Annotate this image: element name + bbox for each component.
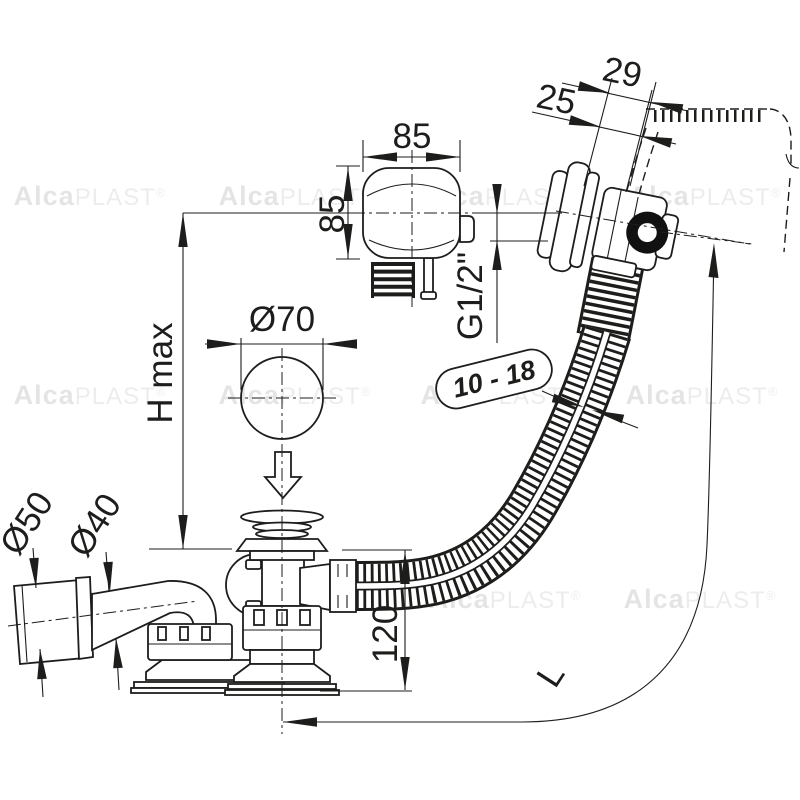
tub-rim-hook [786,154,799,168]
down-arrow-icon [265,452,301,498]
dimension-hole-d70: Ø70 [205,300,357,390]
drawing-svg: AlcaPLAST® AlcaPLAST® AlcaPLAST® AlcaPLA… [0,0,800,800]
svg-text:25: 25 [533,76,579,122]
watermark: AlcaPLAST® [626,380,779,410]
svg-text:Ø50: Ø50 [0,485,61,562]
watermark: AlcaPLAST® [14,181,167,211]
dimension-hose-length: L [283,232,752,727]
svg-text:85: 85 [393,117,432,156]
svg-text:120: 120 [366,605,405,663]
svg-text:Ø70: Ø70 [249,300,315,339]
svg-text:G1/2": G1/2" [451,252,490,340]
svg-text:L: L [529,656,572,694]
svg-text:H max: H max [141,322,180,424]
svg-text:29: 29 [599,49,645,95]
knob-rod [424,258,433,294]
watermark: AlcaPLAST® [624,584,777,614]
dimension-knob-width: 85 [363,117,460,172]
knob-thread-stub [460,216,474,242]
technical-drawing-canvas: AlcaPLAST® AlcaPLAST® AlcaPLAST® AlcaPLA… [0,0,800,800]
hose-union-nut [330,560,356,612]
svg-text:Ø40: Ø40 [60,487,129,564]
svg-text:85: 85 [313,195,352,234]
overflow-fitting [534,158,685,292]
